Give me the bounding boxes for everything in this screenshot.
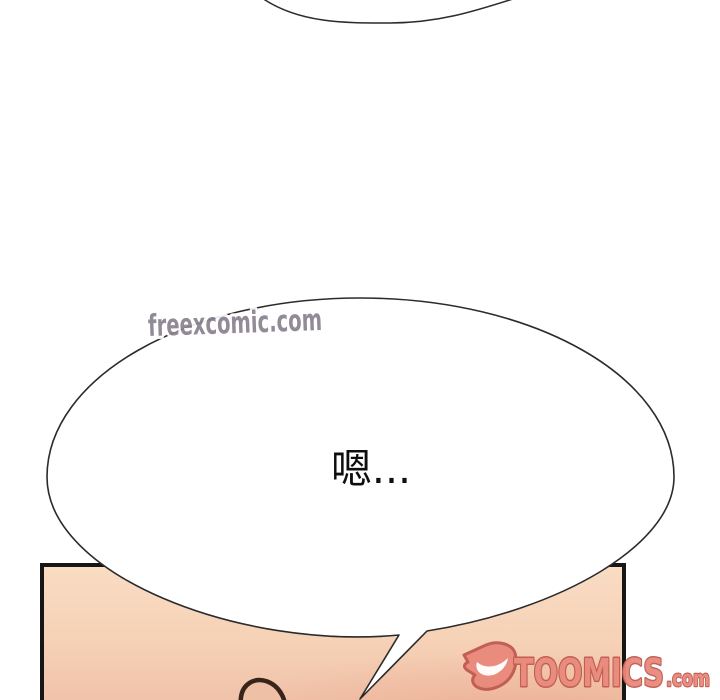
toomics-brand-text: TOOMICS	[514, 651, 664, 695]
toomics-suffix-text: .com	[666, 667, 710, 692]
freexcomic-watermark-text: freexcomic.com	[147, 303, 322, 344]
comic-page-canvas: 嗯... freexcomic.com TOOMICS .com	[0, 0, 720, 700]
freexcomic-watermark: freexcomic.com	[147, 303, 322, 344]
comic-page: 嗯... freexcomic.com TOOMICS .com	[0, 0, 720, 700]
speech-bubble-text: 嗯...	[331, 445, 411, 493]
